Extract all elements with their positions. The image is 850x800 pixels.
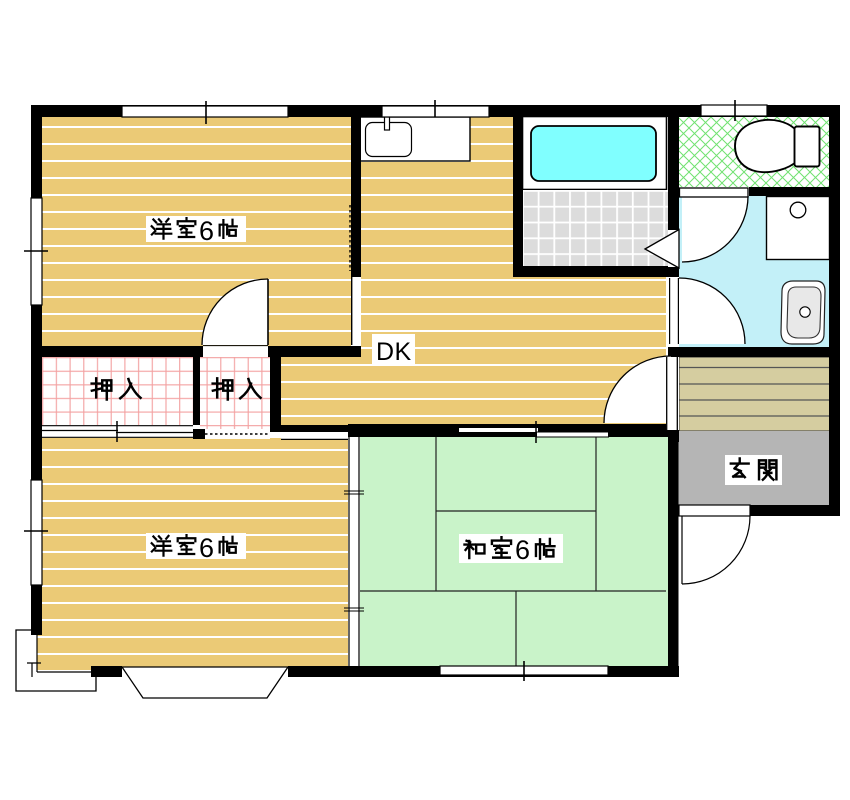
svg-text:6: 6 [515, 535, 530, 565]
svg-text:DK: DK [376, 338, 412, 366]
svg-text:6: 6 [199, 216, 214, 246]
svg-text:6: 6 [199, 533, 214, 563]
